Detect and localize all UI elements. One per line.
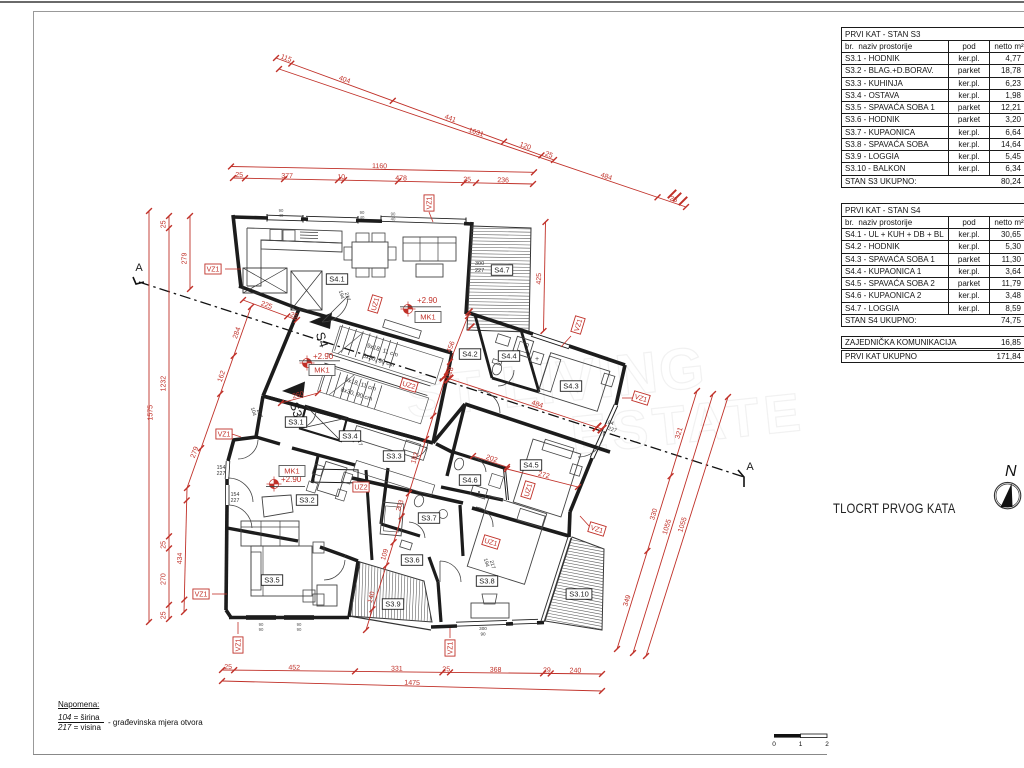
svg-text:90: 90 bbox=[297, 627, 302, 632]
svg-text:+: + bbox=[535, 356, 539, 363]
svg-text:29: 29 bbox=[543, 667, 551, 674]
svg-text:VZ1: VZ1 bbox=[427, 196, 434, 209]
svg-text:S3.7: S3.7 bbox=[421, 514, 436, 523]
svg-text:203: 203 bbox=[395, 499, 405, 512]
svg-text:120: 120 bbox=[518, 141, 531, 152]
svg-text:MK1: MK1 bbox=[284, 467, 299, 476]
svg-text:109: 109 bbox=[380, 548, 390, 561]
svg-text:217: 217 bbox=[255, 409, 263, 419]
svg-text:1055: 1055 bbox=[662, 518, 673, 535]
svg-text:S3.2: S3.2 bbox=[299, 496, 314, 505]
svg-text:90: 90 bbox=[259, 627, 264, 632]
svg-text:404: 404 bbox=[338, 75, 351, 86]
svg-text:162: 162 bbox=[217, 370, 228, 383]
svg-text:90: 90 bbox=[480, 632, 486, 637]
svg-text:240: 240 bbox=[570, 668, 582, 675]
svg-text:377: 377 bbox=[281, 173, 293, 180]
svg-text:484: 484 bbox=[600, 172, 613, 182]
svg-text:A: A bbox=[135, 262, 143, 274]
svg-text:+2.90: +2.90 bbox=[417, 296, 438, 305]
svg-text:300: 300 bbox=[479, 626, 487, 631]
svg-text:VZ1: VZ1 bbox=[236, 638, 243, 651]
svg-text:S3.9: S3.9 bbox=[385, 600, 400, 609]
svg-text:225: 225 bbox=[260, 300, 273, 311]
svg-text:UZ2: UZ2 bbox=[354, 485, 367, 492]
svg-text:S4.2: S4.2 bbox=[462, 350, 477, 359]
svg-text:S4.1: S4.1 bbox=[329, 275, 344, 284]
svg-text:272: 272 bbox=[537, 471, 550, 481]
svg-text:270: 270 bbox=[161, 573, 168, 585]
svg-text:MK1: MK1 bbox=[420, 313, 435, 322]
svg-text:1: 1 bbox=[799, 741, 803, 748]
svg-text:478: 478 bbox=[395, 175, 407, 182]
svg-text:441: 441 bbox=[443, 114, 456, 125]
svg-text:330: 330 bbox=[649, 508, 659, 521]
svg-text:236: 236 bbox=[497, 177, 509, 184]
svg-text:S4.6: S4.6 bbox=[462, 476, 477, 485]
svg-text:S4.5: S4.5 bbox=[523, 461, 538, 470]
svg-text:40: 40 bbox=[279, 213, 284, 218]
svg-text:+2.90: +2.90 bbox=[313, 352, 334, 361]
svg-text:S3.1: S3.1 bbox=[288, 418, 303, 427]
svg-text:349: 349 bbox=[622, 594, 632, 607]
svg-text:VZ1: VZ1 bbox=[195, 592, 208, 599]
svg-text:S3.3: S3.3 bbox=[386, 452, 401, 461]
svg-text:S3.4: S3.4 bbox=[342, 432, 357, 441]
svg-text:25: 25 bbox=[463, 177, 471, 184]
svg-text:227: 227 bbox=[231, 498, 240, 504]
svg-text:279: 279 bbox=[190, 446, 201, 459]
svg-text:115: 115 bbox=[280, 54, 293, 64]
svg-text:25: 25 bbox=[224, 664, 232, 671]
svg-text:2: 2 bbox=[825, 741, 829, 748]
svg-text:S3.8: S3.8 bbox=[479, 577, 494, 586]
svg-text:N: N bbox=[1005, 463, 1017, 480]
svg-text:0: 0 bbox=[772, 741, 776, 748]
svg-text:S3.10: S3.10 bbox=[569, 590, 589, 599]
svg-text:25: 25 bbox=[544, 151, 554, 160]
svg-text:25: 25 bbox=[161, 220, 168, 228]
svg-text:452: 452 bbox=[288, 665, 300, 672]
svg-text:S3.5: S3.5 bbox=[264, 576, 279, 585]
svg-text:1160: 1160 bbox=[372, 163, 387, 170]
svg-text:1232: 1232 bbox=[161, 376, 168, 392]
svg-text:1475: 1475 bbox=[404, 680, 420, 687]
svg-text:25: 25 bbox=[235, 172, 243, 179]
svg-text:434: 434 bbox=[177, 552, 184, 564]
svg-text:25: 25 bbox=[161, 541, 168, 549]
svg-text:25: 25 bbox=[161, 611, 168, 619]
svg-text:S4.4: S4.4 bbox=[501, 352, 516, 361]
svg-text:S4.7: S4.7 bbox=[494, 266, 509, 275]
svg-text:40: 40 bbox=[360, 215, 365, 220]
svg-text:1575: 1575 bbox=[148, 405, 155, 421]
svg-text:VZ1: VZ1 bbox=[218, 432, 231, 439]
svg-text:227: 227 bbox=[217, 471, 226, 477]
svg-text:VZ1: VZ1 bbox=[207, 267, 220, 274]
svg-text:425: 425 bbox=[536, 273, 543, 285]
svg-text:300: 300 bbox=[475, 261, 484, 267]
svg-text:279: 279 bbox=[182, 253, 189, 265]
svg-text:10: 10 bbox=[337, 174, 345, 181]
svg-text:MK1: MK1 bbox=[314, 366, 329, 375]
svg-text:227: 227 bbox=[475, 268, 484, 274]
svg-text:368: 368 bbox=[490, 667, 502, 674]
svg-text:1631: 1631 bbox=[467, 127, 484, 139]
svg-text:456: 456 bbox=[446, 340, 457, 354]
svg-text:S3.6: S3.6 bbox=[404, 556, 419, 565]
svg-text:A: A bbox=[746, 461, 754, 473]
svg-text:S4.3: S4.3 bbox=[563, 382, 578, 391]
svg-text:VZ1: VZ1 bbox=[448, 641, 455, 654]
svg-text:284: 284 bbox=[232, 326, 243, 339]
svg-text:217: 217 bbox=[488, 560, 496, 570]
svg-text:331: 331 bbox=[391, 666, 403, 673]
svg-text:25: 25 bbox=[442, 666, 450, 673]
svg-text:S4: S4 bbox=[313, 330, 331, 349]
svg-text:182: 182 bbox=[410, 451, 420, 464]
